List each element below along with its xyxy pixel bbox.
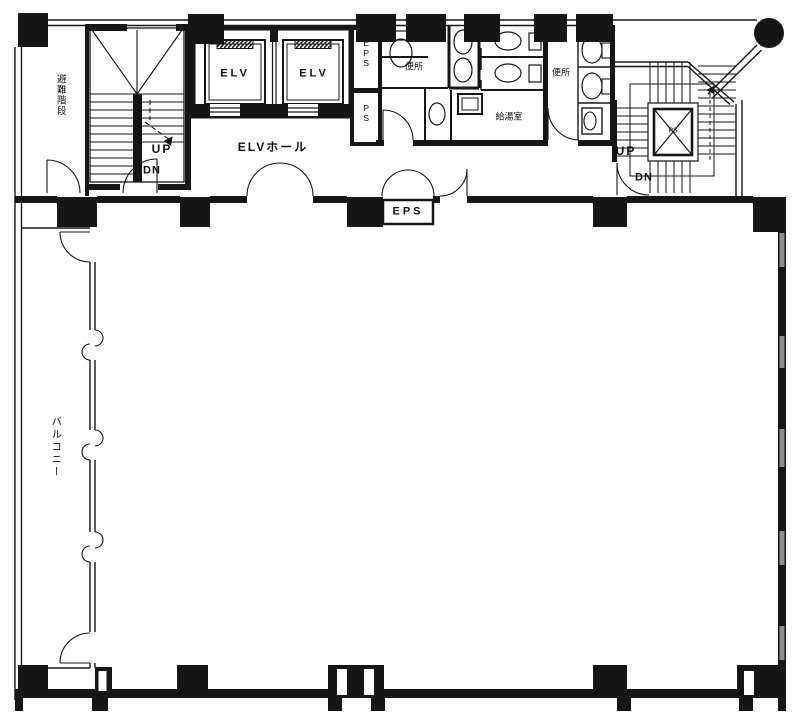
window-swing (82, 532, 103, 562)
bottom-wall (15, 665, 786, 711)
kitchenette-label: 給湯室 (495, 113, 522, 122)
urinal (454, 58, 472, 82)
toilet-right-label: 便所 (552, 69, 570, 78)
left-staircase (85, 24, 191, 196)
window-swing (82, 330, 103, 360)
toilet-women (451, 25, 548, 140)
wash-basin (429, 103, 445, 125)
balcony-door-top (60, 232, 90, 262)
right-stair-up-label: UP (616, 145, 637, 157)
window-swing (82, 430, 103, 460)
kitchenette-sink (458, 94, 482, 114)
corner-post (754, 18, 784, 48)
right-stair-dn-label: DN (635, 173, 653, 184)
toilet-men (380, 25, 479, 140)
escape-stairs-label: 避難階段 (55, 74, 65, 116)
balcony-door-bottom (60, 633, 90, 663)
eps-shaft-label: EPS (362, 38, 371, 68)
door (548, 108, 578, 140)
left-stair-up-label: UP (152, 143, 173, 155)
eps-box-label: EPS (392, 207, 423, 218)
balcony-label: バルコニー (51, 416, 62, 479)
door (383, 110, 413, 140)
elevator-2-label: ELV (299, 69, 329, 80)
right-stair-shaft-label: PS (668, 128, 677, 135)
exterior-walls (15, 20, 762, 700)
toilet-left-label: 便所 (405, 63, 423, 72)
elevator-hall-label: ELVホール (238, 141, 308, 153)
floor-plan-page: 避難階段 UP DN ELV ELV ELVホール EPS PS 便所 便所 給… (0, 0, 800, 714)
hall-doors (247, 163, 467, 196)
left-stair-dn-label: DN (143, 166, 161, 177)
ps-shaft-label: PS (362, 103, 371, 123)
floor-plan-canvas (0, 0, 800, 714)
right-wall (778, 230, 786, 695)
elevator-1-label: ELV (220, 69, 250, 80)
balcony (60, 232, 103, 668)
